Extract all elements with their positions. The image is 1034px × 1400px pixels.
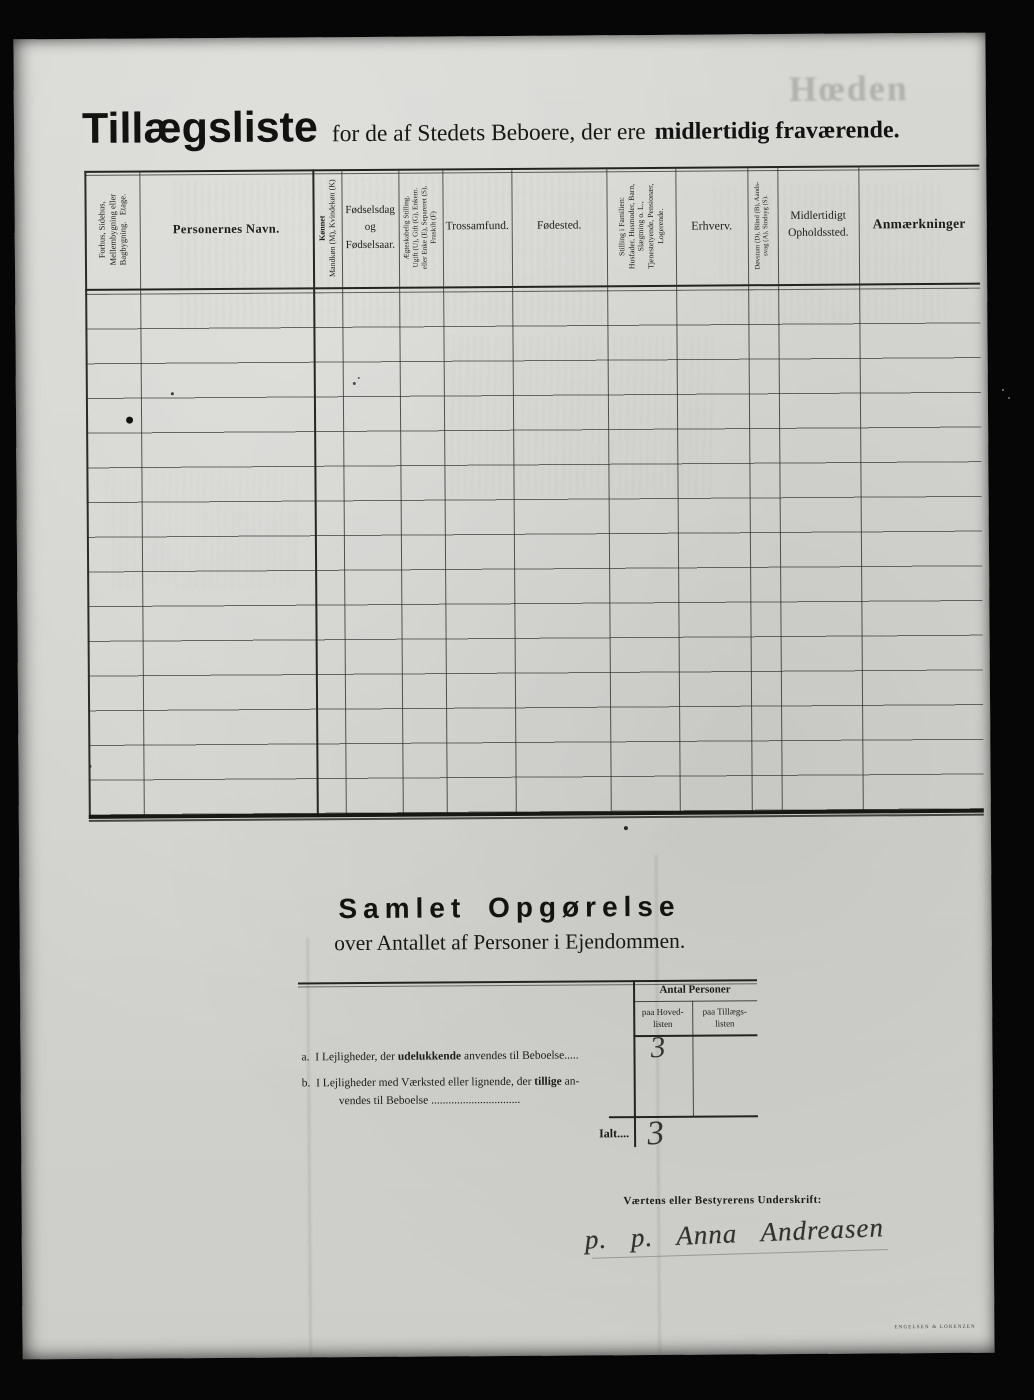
col-header-marital-line: Fraskilt (F) xyxy=(429,186,439,269)
summary-row-b-line1: b. I Lejligheder med Værksted eller lign… xyxy=(302,1075,642,1089)
col-header-sex: Kønnet Mandkøn (M), Kvindekøn (K) xyxy=(312,169,342,287)
form-title: Tillægsliste for de af Stedets Beboere, … xyxy=(82,99,900,154)
ink-dot xyxy=(624,826,628,830)
col-header-family-line: Logerende. xyxy=(656,183,666,268)
col-header-family-line: Slægtning o. L., xyxy=(636,183,646,268)
col-header-building-line: Bagbygning. Etage. xyxy=(117,194,128,266)
census-table-empty-rows xyxy=(85,289,984,815)
summary-col-hovedlisten: paa Hoved- listen xyxy=(633,1006,692,1031)
summary-row-a: a. I Lejligheder, der udelukkende anvend… xyxy=(301,1049,631,1063)
summary-col-tillaegslisten: paa Tillægs- listen xyxy=(692,1005,757,1030)
handwritten-value-total: 3 xyxy=(646,1114,666,1153)
census-table-header: Forhus, Sidehus, Mellembygning eller Bag… xyxy=(84,165,980,289)
col-header-family-line: Stilling i Familien: xyxy=(617,183,627,268)
col-header-residence-line: Opholdssted. xyxy=(788,225,848,243)
col-header-family-position: Stilling i Familien: Husfader, Husmoder,… xyxy=(606,167,676,285)
col-header-birthdate-line: Fødselsdag xyxy=(345,201,395,219)
col-header-family-line: Tjenestetyende, Pensionær, xyxy=(646,183,656,268)
summary-subheading: over Antallet af Personer i Ejendommen. xyxy=(300,929,720,957)
col-header-disability-line: svag (A), Sindsyg (S). xyxy=(762,181,771,269)
col-header-disability: Døvstum (D), Blind (B), Aands- svag (A),… xyxy=(747,166,778,284)
col-header-name: Personernes Navn. xyxy=(139,169,313,288)
summary-row-b-index: b. xyxy=(302,1077,311,1089)
col-header-sex-line: Mandkøn (M), Kvindekøn (K) xyxy=(327,179,338,277)
handwritten-value-row-a: 3 xyxy=(649,1030,667,1065)
col-header-birthplace: Fødested. xyxy=(511,167,607,286)
col-header-building-line: Mellembygning eller xyxy=(107,194,118,266)
col-header-remarks: Anmærkninger xyxy=(858,165,980,284)
col-header-birthdate-line: og xyxy=(365,219,376,237)
col-header-residence-line: Midlertidigt xyxy=(790,207,846,225)
census-table: Forhus, Sidehus, Mellembygning eller Bag… xyxy=(84,165,984,821)
summary-row-a-index: a. xyxy=(301,1051,309,1063)
summary-heading: Samlet Opgørelse xyxy=(299,891,719,926)
form-title-main: Tillægsliste xyxy=(82,103,318,154)
summary-total-rule xyxy=(609,1115,758,1118)
printer-imprint: Engelsen & Lorenzen xyxy=(894,1325,975,1331)
summary-total-label: Ialt.... xyxy=(501,1126,629,1142)
col-header-sex-line: Kønnet xyxy=(317,179,328,277)
summary-row-b-line2: vendes til Beboelse ....................… xyxy=(339,1093,659,1107)
col-header-religion: Trossamfund. xyxy=(442,168,512,286)
col-header-temporary-residence: Midlertidigt Opholdssted. xyxy=(777,166,859,285)
scan-margin-speck xyxy=(1002,389,1004,391)
col-header-family-line: Husfader, Husmoder, Barn, xyxy=(626,183,636,268)
col-header-birthdate: Fødselsdag og Fødselsaar. xyxy=(341,169,399,287)
col-header-birthdate-line: Fødselsaar. xyxy=(346,237,395,255)
summary-antal-header: Antal Personer xyxy=(633,983,757,996)
col-header-marital-status: Ægteskabelig Stilling. Ugift (U), Gift (… xyxy=(398,168,443,286)
col-header-occupation: Erhverv. xyxy=(675,166,748,284)
paper-crease xyxy=(307,937,312,1357)
form-title-rest: for de af Stedets Beboere, der ere xyxy=(332,119,646,148)
handwritten-signature: p. p. Anna Andreasen xyxy=(584,1212,884,1256)
col-header-building: Forhus, Sidehus, Mellembygning eller Bag… xyxy=(84,171,140,289)
form-title-rest-bold: midlertidig fraværende. xyxy=(655,117,900,146)
summary-rule xyxy=(633,1000,757,1002)
census-form-paper: Hœden Tillægsliste for de af Stedets Beb… xyxy=(13,33,994,1360)
signature-label: Værtens eller Bestyrerens Underskrift: xyxy=(623,1194,821,1207)
col-header-building-line: Forhus, Sidehus, xyxy=(96,194,107,266)
scan-margin-speck xyxy=(1008,397,1010,399)
